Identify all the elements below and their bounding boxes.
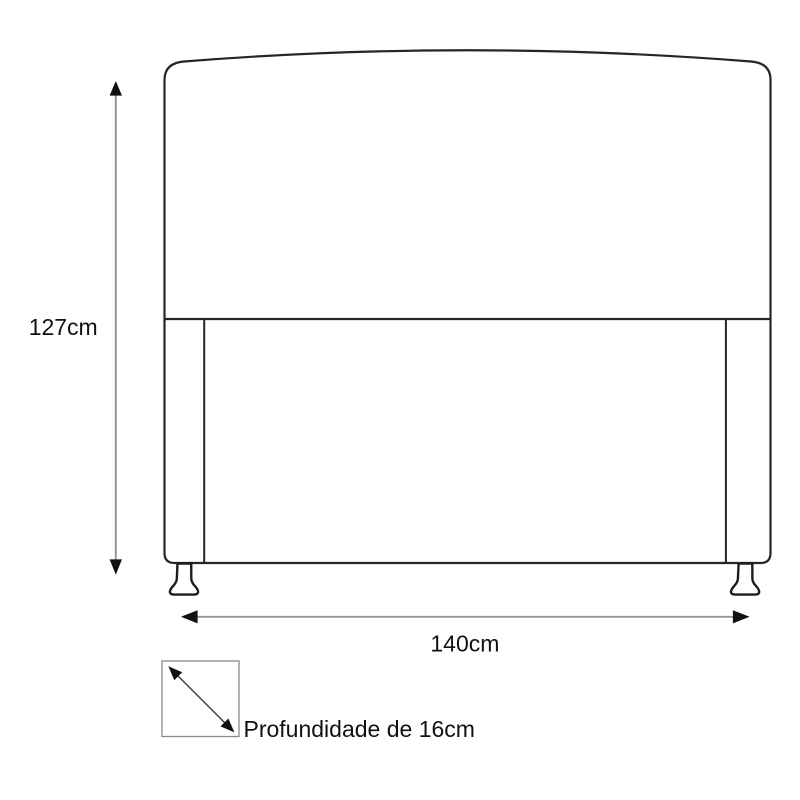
svg-text:140cm: 140cm	[430, 631, 499, 657]
svg-text:127cm: 127cm	[29, 314, 98, 340]
svg-text:Profundidade de 16cm: Profundidade de 16cm	[244, 716, 475, 742]
